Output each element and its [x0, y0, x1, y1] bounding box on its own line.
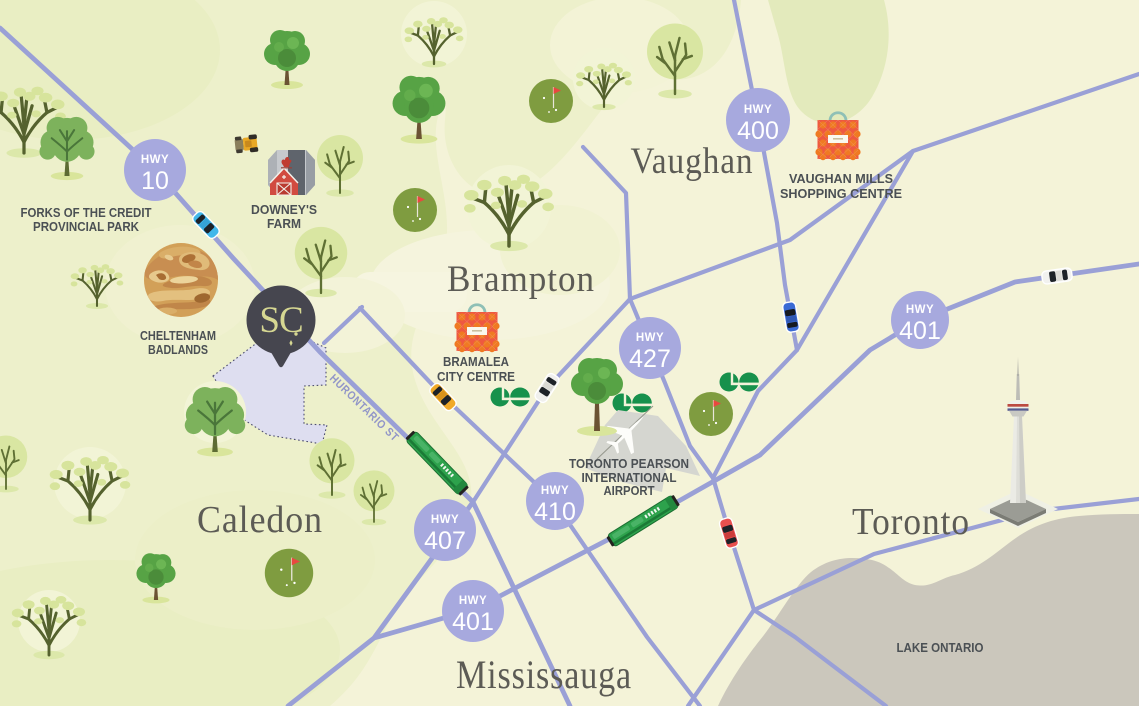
- svg-text:CITY CENTRE: CITY CENTRE: [437, 369, 515, 384]
- svg-text:407: 407: [424, 527, 466, 555]
- svg-text:FARM: FARM: [267, 216, 301, 231]
- svg-text:401: 401: [899, 317, 941, 345]
- svg-text:10: 10: [141, 167, 169, 195]
- svg-text:410: 410: [534, 498, 576, 526]
- svg-text:HWY: HWY: [459, 595, 487, 607]
- svg-text:Mississauga: Mississauga: [456, 652, 632, 697]
- svg-text:Brampton: Brampton: [447, 259, 595, 300]
- svg-text:FORKS OF THE CREDIT: FORKS OF THE CREDIT: [21, 205, 152, 220]
- svg-text:Caledon: Caledon: [197, 499, 323, 541]
- svg-text:HWY: HWY: [906, 304, 934, 316]
- svg-text:AIRPORT: AIRPORT: [604, 483, 655, 498]
- svg-text:HWY: HWY: [541, 485, 569, 497]
- svg-text:PROVINCIAL PARK: PROVINCIAL PARK: [33, 219, 140, 234]
- svg-text:BRAMALEA: BRAMALEA: [443, 354, 510, 369]
- svg-text:SHOPPING CENTRE: SHOPPING CENTRE: [780, 186, 902, 201]
- svg-text:BADLANDS: BADLANDS: [148, 342, 208, 357]
- svg-text:Vaughan: Vaughan: [631, 141, 754, 182]
- svg-text:Toronto: Toronto: [852, 501, 970, 543]
- svg-text:401: 401: [452, 608, 494, 636]
- svg-text:427: 427: [629, 345, 671, 373]
- svg-text:TORONTO PEARSON: TORONTO PEARSON: [569, 456, 689, 471]
- svg-text:CHELTENHAM: CHELTENHAM: [140, 328, 216, 343]
- svg-text:HWY: HWY: [744, 104, 772, 116]
- svg-text:LAKE ONTARIO: LAKE ONTARIO: [897, 640, 984, 655]
- svg-text:HWY: HWY: [636, 332, 664, 344]
- svg-text:VAUGHAN MILLS: VAUGHAN MILLS: [789, 171, 893, 186]
- svg-text:HWY: HWY: [431, 514, 459, 526]
- svg-text:DOWNEY'S: DOWNEY'S: [251, 202, 317, 217]
- svg-text:HWY: HWY: [141, 154, 169, 166]
